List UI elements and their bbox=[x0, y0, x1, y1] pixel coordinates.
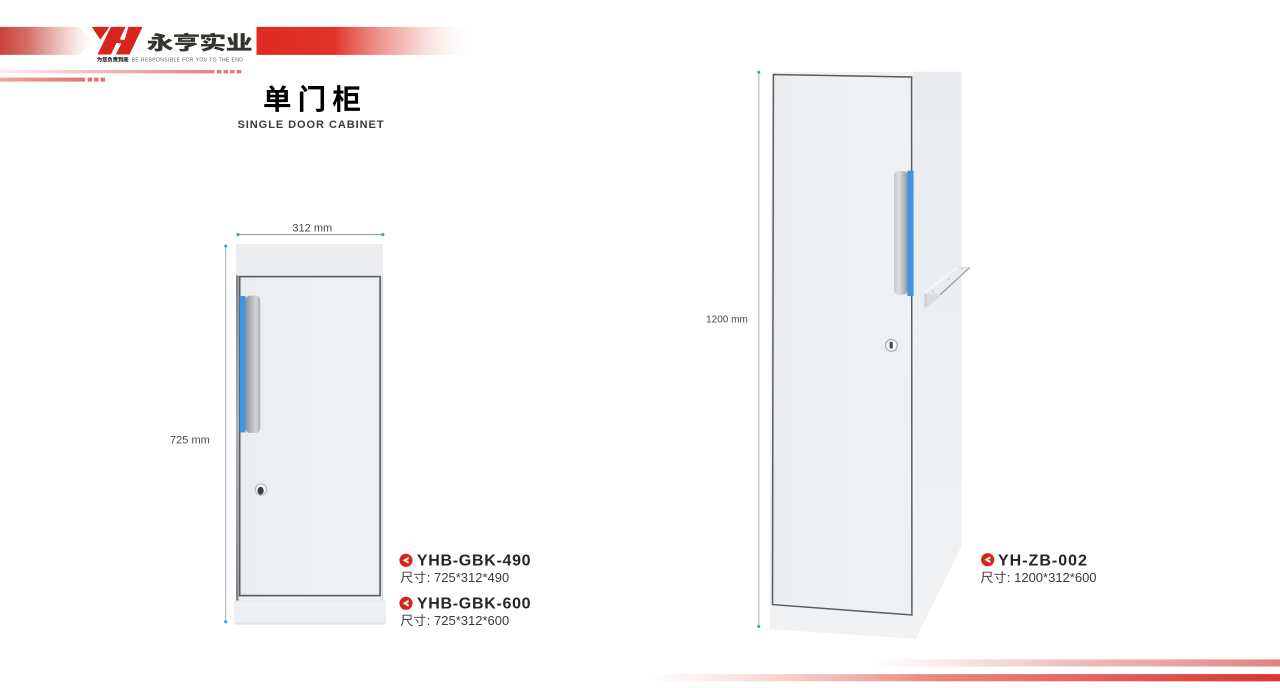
svg-text:1200 mm: 1200 mm bbox=[706, 314, 748, 325]
svg-text:: 1200*312*600: : 1200*312*600 bbox=[1007, 570, 1097, 585]
svg-text:BE RESPONSIBLE FOR YOU TO THE: BE RESPONSIBLE FOR YOU TO THE END bbox=[132, 57, 244, 63]
svg-text:SINGLE DOOR CABINET: SINGLE DOOR CABINET bbox=[238, 119, 385, 131]
svg-text:YHB-GBK-490: YHB-GBK-490 bbox=[417, 553, 531, 570]
svg-text:: 725*312*490: : 725*312*490 bbox=[427, 570, 509, 585]
svg-text:725 mm: 725 mm bbox=[170, 434, 210, 446]
svg-text:YHB-GBK-600: YHB-GBK-600 bbox=[417, 596, 531, 613]
svg-text:: 725*312*600: : 725*312*600 bbox=[427, 613, 509, 628]
svg-text:YH-ZB-002: YH-ZB-002 bbox=[998, 553, 1088, 570]
svg-text:312 mm: 312 mm bbox=[292, 222, 332, 234]
